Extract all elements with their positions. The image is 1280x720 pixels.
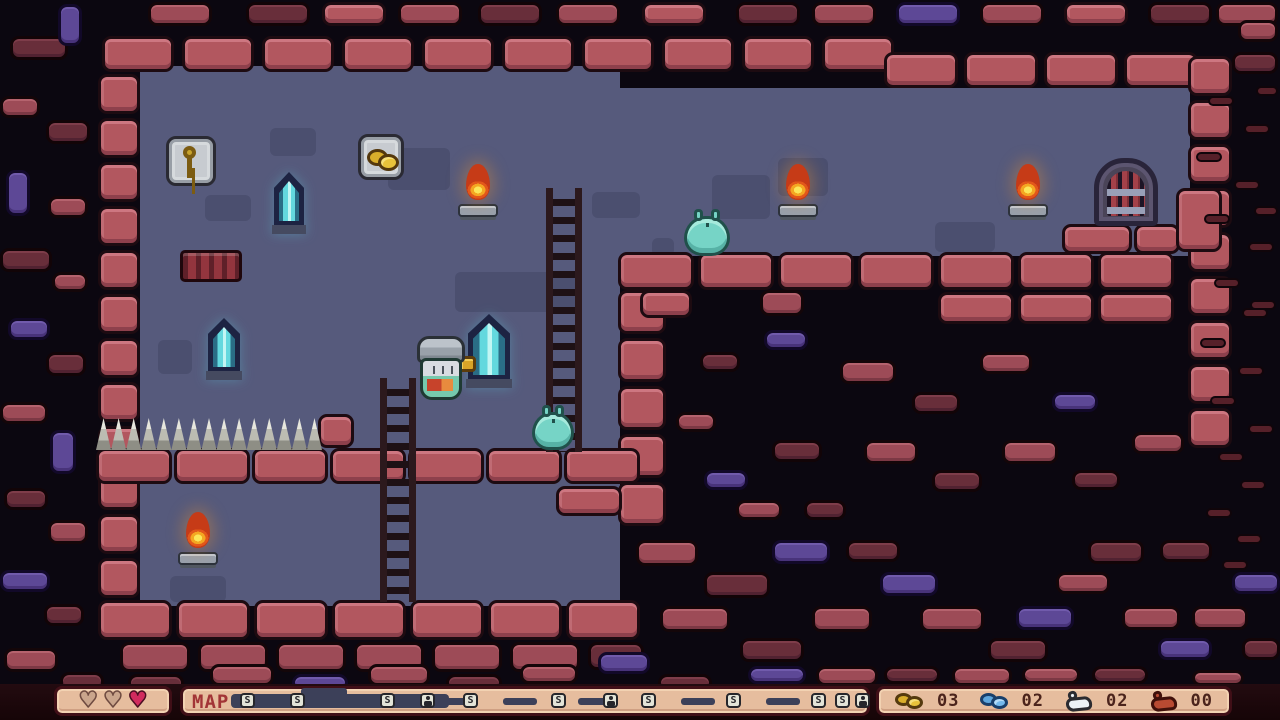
torch xyxy=(1006,164,1050,222)
brick xyxy=(1254,206,1278,216)
brick xyxy=(176,600,250,640)
brick xyxy=(254,600,328,640)
white-flask-icon xyxy=(1064,689,1098,713)
map-track-segment xyxy=(323,698,357,705)
brick xyxy=(704,572,770,598)
brick xyxy=(660,606,730,632)
brick xyxy=(1244,124,1270,134)
map-node-figure xyxy=(855,693,870,708)
brick xyxy=(120,642,190,672)
brick xyxy=(582,36,654,72)
brick xyxy=(318,414,354,448)
brick xyxy=(1158,638,1212,660)
brick xyxy=(98,206,140,246)
brick xyxy=(0,248,52,272)
heart-full-icon: ♥ xyxy=(128,691,148,711)
background-shadow xyxy=(158,340,192,374)
brick xyxy=(174,448,250,484)
brick xyxy=(700,352,740,372)
player-character xyxy=(414,336,468,400)
counter-value: 02 xyxy=(1022,691,1044,711)
brick xyxy=(816,666,878,684)
counter-white: 02 xyxy=(1064,689,1128,713)
brick xyxy=(410,600,484,640)
background-shadow xyxy=(712,175,770,219)
brick xyxy=(740,638,804,662)
brick xyxy=(1016,606,1074,630)
brick xyxy=(210,664,274,684)
brick xyxy=(618,252,694,290)
map-node-checkpoint: S xyxy=(835,693,850,708)
background-shadow xyxy=(592,192,640,218)
brick xyxy=(1210,396,1236,406)
counter-value: 03 xyxy=(937,691,959,711)
brick xyxy=(1218,452,1244,462)
brick xyxy=(658,674,712,684)
brick xyxy=(1022,666,1080,684)
brick xyxy=(1238,366,1264,376)
brick xyxy=(1192,606,1248,630)
brick xyxy=(292,674,348,684)
brick xyxy=(1240,480,1266,490)
map-node-checkpoint: S xyxy=(726,693,741,708)
brick xyxy=(98,74,140,114)
brick xyxy=(598,652,650,674)
brick xyxy=(398,2,462,26)
brick xyxy=(812,606,872,632)
brick xyxy=(618,482,666,526)
brick xyxy=(488,600,562,640)
brick xyxy=(812,2,876,26)
torch xyxy=(456,164,500,222)
brick xyxy=(704,470,748,490)
counter-red: 00 xyxy=(1149,689,1213,713)
brick xyxy=(46,120,90,144)
brick xyxy=(58,4,82,46)
brick xyxy=(1088,540,1144,564)
brick xyxy=(980,352,1032,374)
brick xyxy=(618,386,666,430)
brick xyxy=(636,540,698,566)
brick xyxy=(742,36,814,72)
brick xyxy=(1204,214,1230,224)
slime-enemy xyxy=(684,216,730,256)
brick xyxy=(432,642,502,672)
brick xyxy=(566,600,640,640)
game-screen: ♥♥♥ MAP SSSSSSSSS 03020200 xyxy=(0,0,1280,720)
brick xyxy=(322,2,386,26)
map-track-segment xyxy=(681,698,715,705)
background-shadow xyxy=(205,195,251,221)
counter-value: 02 xyxy=(1106,691,1128,711)
brick xyxy=(1098,252,1174,290)
brick xyxy=(4,648,58,672)
brick xyxy=(422,36,494,72)
heart-empty-icon: ♥ xyxy=(103,691,123,711)
brick xyxy=(618,338,666,382)
brick xyxy=(864,440,918,464)
map-node-checkpoint: S xyxy=(811,693,826,708)
brick xyxy=(564,448,640,484)
brick xyxy=(1248,424,1274,434)
brick xyxy=(676,412,716,432)
brick xyxy=(1122,606,1180,630)
brick xyxy=(760,290,804,316)
red-flask-icon xyxy=(1149,689,1183,713)
brick xyxy=(1092,666,1148,684)
map-node-checkpoint: S xyxy=(380,693,395,708)
brick xyxy=(148,2,212,26)
background-shadow xyxy=(270,128,316,156)
hud-bar: ♥♥♥ MAP SSSSSSSSS 03020200 xyxy=(0,684,1280,720)
brick xyxy=(642,2,706,26)
brick xyxy=(342,36,414,72)
brick xyxy=(1098,292,1174,324)
brick xyxy=(556,486,622,516)
brick xyxy=(1214,278,1240,288)
brick xyxy=(778,252,854,290)
brick xyxy=(1242,638,1280,660)
background-shadow xyxy=(935,222,995,252)
health-panel: ♥♥♥ xyxy=(54,686,172,716)
background-shadow xyxy=(170,576,226,602)
exit-door xyxy=(1094,158,1158,226)
coins-item xyxy=(358,134,404,180)
brick xyxy=(698,252,774,290)
brick xyxy=(478,2,542,26)
brick xyxy=(772,540,830,564)
brick xyxy=(48,196,88,218)
counter-value: 00 xyxy=(1191,691,1213,711)
brick xyxy=(932,470,982,492)
crystal-lamp xyxy=(206,318,242,380)
brick xyxy=(1132,432,1184,454)
crystal-lamp xyxy=(466,314,512,388)
map-track: SSSSSSSSS xyxy=(183,689,867,713)
brick xyxy=(764,330,808,350)
brick xyxy=(662,36,734,72)
counter-gold: 03 xyxy=(895,689,959,713)
brick xyxy=(98,514,140,554)
brick xyxy=(938,292,1014,324)
brick xyxy=(1232,572,1280,594)
counters-panel: 03020200 xyxy=(876,686,1232,716)
map-node-checkpoint: S xyxy=(240,693,255,708)
brick xyxy=(964,52,1038,88)
brick xyxy=(446,674,502,684)
brick xyxy=(1234,180,1260,190)
brick xyxy=(1002,440,1058,464)
brick xyxy=(884,666,940,684)
brick xyxy=(912,392,960,414)
brick xyxy=(1064,2,1128,26)
brick xyxy=(1238,20,1278,42)
brick xyxy=(748,666,806,684)
blue-coins-icon xyxy=(980,689,1014,713)
brick xyxy=(102,36,174,72)
brick xyxy=(0,402,48,424)
brick xyxy=(840,360,896,384)
ladder xyxy=(380,378,416,602)
brick xyxy=(736,2,800,26)
brick xyxy=(520,664,578,684)
brick xyxy=(276,642,346,672)
brick xyxy=(980,2,1044,26)
brick xyxy=(98,338,140,378)
brick xyxy=(1056,572,1110,594)
crystal-lamp xyxy=(272,172,306,234)
gold-coins-icon xyxy=(895,689,929,713)
brick xyxy=(262,36,334,72)
brick xyxy=(98,162,140,202)
brick xyxy=(1256,86,1278,96)
brick xyxy=(368,664,430,684)
map-track-segment xyxy=(766,698,800,705)
brick xyxy=(1018,292,1094,324)
brick xyxy=(920,606,984,632)
brick xyxy=(486,448,562,484)
brick xyxy=(1044,52,1118,88)
brick xyxy=(1188,100,1232,140)
brick xyxy=(988,638,1048,662)
brick xyxy=(4,488,48,510)
brick xyxy=(1236,534,1262,544)
brick xyxy=(8,318,50,340)
brick xyxy=(1208,96,1234,106)
brick xyxy=(896,2,960,26)
map-node-checkpoint: S xyxy=(463,693,478,708)
brick xyxy=(884,52,958,88)
brick xyxy=(98,294,140,334)
torch xyxy=(776,164,820,222)
brick xyxy=(6,170,30,216)
brick xyxy=(98,118,140,158)
brick xyxy=(1232,52,1278,74)
brick xyxy=(1148,2,1212,26)
brick xyxy=(1200,338,1226,348)
brick xyxy=(846,540,900,562)
brick xyxy=(772,440,822,462)
brick xyxy=(98,558,140,598)
key-item xyxy=(166,136,216,186)
counter-blue: 02 xyxy=(980,689,1044,713)
brick xyxy=(182,36,254,72)
brick xyxy=(96,448,172,484)
slime-enemy xyxy=(532,412,574,450)
brick xyxy=(858,252,934,290)
brick xyxy=(1018,252,1094,290)
brick xyxy=(502,36,574,72)
map-track-segment xyxy=(503,698,537,705)
brick xyxy=(804,500,846,520)
brick xyxy=(128,674,184,684)
torch xyxy=(176,512,220,570)
brick xyxy=(46,352,86,376)
brick xyxy=(1062,224,1132,254)
brick xyxy=(1206,508,1232,518)
brick xyxy=(252,448,328,484)
map-node-checkpoint: S xyxy=(290,693,305,708)
brick xyxy=(98,382,140,422)
map-panel: MAP SSSSSSSSS xyxy=(180,686,870,716)
brick xyxy=(44,604,84,626)
brick xyxy=(1196,152,1222,162)
brick xyxy=(1222,560,1248,570)
brick xyxy=(736,500,782,520)
brick xyxy=(952,666,1012,684)
map-track-bump xyxy=(301,688,347,697)
brick xyxy=(938,252,1014,290)
brick xyxy=(408,448,484,484)
brick xyxy=(246,2,310,26)
heart-empty-icon: ♥ xyxy=(78,691,98,711)
brick xyxy=(556,2,620,26)
map-node-checkpoint: S xyxy=(551,693,566,708)
brick xyxy=(1124,52,1198,88)
brick xyxy=(1192,670,1244,684)
brick xyxy=(640,290,692,318)
map-node-figure xyxy=(603,693,618,708)
brick xyxy=(1188,144,1232,184)
wall-grate xyxy=(180,250,242,282)
brick xyxy=(880,572,938,596)
brick xyxy=(1072,470,1120,490)
brick xyxy=(0,570,50,592)
brick xyxy=(50,430,76,474)
brick xyxy=(60,672,104,684)
brick xyxy=(332,600,406,640)
brick xyxy=(1160,540,1212,562)
brick xyxy=(1188,408,1232,448)
brick xyxy=(1188,56,1232,96)
map-node-figure xyxy=(420,693,435,708)
brick xyxy=(98,600,172,640)
brick xyxy=(48,520,88,544)
brick xyxy=(0,96,40,118)
brick xyxy=(1134,224,1180,254)
map-node-checkpoint: S xyxy=(641,693,656,708)
brick xyxy=(1248,242,1274,252)
level-viewport[interactable] xyxy=(0,0,1280,684)
brick xyxy=(1250,300,1276,310)
brick xyxy=(98,250,140,290)
brick xyxy=(1052,392,1098,412)
brick xyxy=(52,272,88,292)
